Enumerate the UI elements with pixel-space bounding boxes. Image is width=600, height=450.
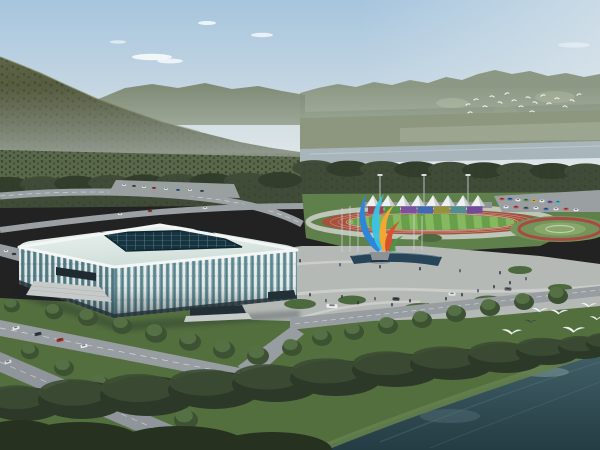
car (132, 185, 136, 187)
street-tree-highlight (345, 323, 359, 334)
person (459, 269, 461, 272)
shore-tree-highlight (411, 346, 477, 368)
car-windshield (533, 200, 536, 201)
banner-panel (418, 207, 434, 214)
cloud (110, 40, 126, 44)
car (4, 250, 9, 252)
person (509, 281, 511, 284)
street-tree-highlight (79, 309, 93, 320)
car (504, 206, 509, 208)
sculpture-shadow (370, 260, 390, 264)
street-tree-highlight (55, 359, 69, 370)
car-windshield (204, 207, 206, 208)
person (357, 301, 359, 304)
person (525, 277, 527, 280)
car-windshield (177, 189, 179, 190)
person (391, 303, 393, 306)
street-tree-highlight (5, 299, 17, 308)
car-windshield (165, 188, 167, 189)
car (540, 200, 545, 202)
person (341, 295, 343, 298)
car-windshield (535, 207, 538, 208)
car (564, 208, 569, 210)
car-windshield (517, 199, 520, 200)
car-windshield (509, 198, 512, 199)
car (504, 287, 511, 291)
street-tree-highlight (313, 329, 327, 340)
car-windshield (450, 293, 454, 295)
shore-tree-highlight (101, 374, 176, 402)
car (448, 292, 455, 296)
car-windshield (525, 207, 528, 208)
car (326, 304, 337, 309)
car-windshield (201, 190, 203, 191)
car-windshield (133, 185, 135, 186)
car-windshield (565, 208, 568, 209)
person (445, 297, 447, 300)
shrub-bed (284, 299, 316, 309)
street-tree-highlight (214, 340, 230, 352)
car-windshield (143, 186, 145, 187)
cloud (251, 33, 273, 37)
street-tree-highlight (283, 339, 297, 350)
shore-tree-highlight (169, 369, 241, 396)
car (532, 200, 537, 202)
street-tree-highlight (447, 305, 461, 316)
car (148, 210, 153, 212)
car-windshield (525, 199, 528, 200)
car-windshield (501, 198, 504, 199)
person (299, 259, 301, 262)
car (524, 207, 529, 209)
person (325, 299, 327, 302)
car-windshield (541, 200, 544, 201)
person (499, 271, 501, 274)
car (188, 189, 192, 191)
car-windshield (555, 208, 558, 209)
car-windshield (505, 206, 508, 207)
banner-panel (434, 207, 450, 214)
car (554, 208, 559, 210)
banner-panel (401, 207, 417, 214)
banner-panel (467, 207, 483, 214)
cloud (198, 21, 216, 25)
cloud (157, 59, 183, 64)
car (176, 189, 180, 191)
car-windshield (5, 250, 7, 251)
car-windshield (575, 209, 578, 210)
person (379, 265, 381, 268)
car (534, 207, 539, 209)
car-windshield (545, 208, 548, 209)
person (477, 289, 479, 292)
car (548, 201, 553, 203)
sculpture-pedestal (370, 252, 390, 260)
banner-panel (451, 207, 467, 214)
car-windshield (153, 187, 155, 188)
screenshot (0, 0, 600, 450)
car-windshield (13, 253, 15, 254)
floodlight-head (378, 174, 383, 176)
car-windshield (189, 189, 191, 190)
person (493, 285, 495, 288)
car (508, 198, 513, 200)
car (544, 208, 549, 210)
street-tree-highlight (113, 317, 127, 328)
garden-inner-lawn (534, 223, 586, 236)
car (118, 213, 123, 215)
shore-tree-highlight (291, 358, 363, 383)
car (12, 253, 17, 255)
grandstand-banners (368, 207, 483, 214)
car-windshield (557, 201, 560, 202)
car-windshield (515, 206, 518, 207)
street-tree-highlight (515, 293, 529, 304)
car-windshield (123, 184, 125, 185)
street-tree-highlight (180, 332, 196, 344)
car (200, 190, 204, 192)
valley (300, 110, 600, 164)
street-tree-highlight (146, 324, 162, 336)
car (524, 199, 529, 201)
person (409, 299, 411, 302)
floodlight-head (466, 174, 471, 176)
street-tree-highlight (481, 299, 495, 310)
street-tree-highlight (22, 344, 35, 354)
street-tree-highlight (413, 311, 427, 322)
street-tree-highlight (549, 287, 563, 298)
street-tree-highlight (379, 317, 393, 328)
car-windshield (506, 288, 510, 290)
person (309, 293, 311, 296)
car (516, 199, 521, 201)
car (392, 297, 399, 301)
cloud (558, 42, 590, 47)
person (339, 263, 341, 266)
car (142, 186, 146, 188)
shore-tree-highlight (39, 379, 108, 406)
car-windshield (549, 201, 552, 202)
car-windshield (149, 210, 151, 211)
car (514, 206, 519, 208)
person (461, 293, 463, 296)
car (574, 209, 579, 211)
car (203, 207, 208, 209)
floodlight-head (422, 174, 427, 176)
scene-svg (0, 0, 600, 450)
arena-skylight (102, 230, 242, 251)
shrub-bed (508, 266, 532, 274)
street-tree-highlight (46, 304, 59, 314)
car-windshield (119, 213, 121, 214)
person (374, 297, 376, 300)
car-windshield (394, 298, 398, 300)
car (152, 187, 156, 189)
car (500, 198, 505, 200)
street-tree-highlight (248, 346, 264, 358)
car (164, 188, 168, 190)
person (419, 267, 421, 270)
car-windshield (329, 304, 335, 306)
car (556, 201, 561, 203)
car (122, 184, 126, 186)
